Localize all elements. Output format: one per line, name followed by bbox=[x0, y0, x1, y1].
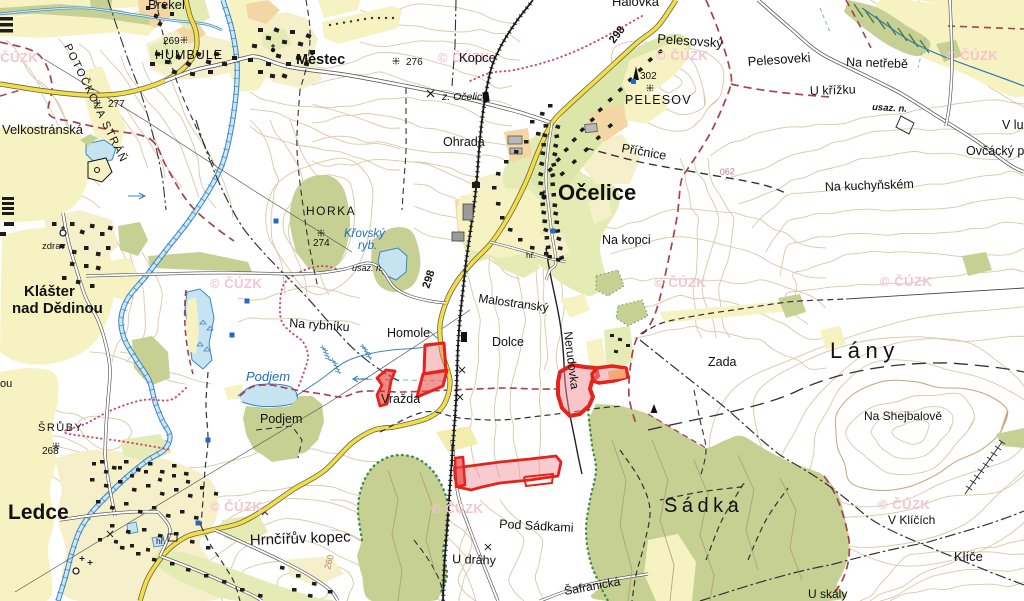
svg-text:Na kopci: Na kopci bbox=[602, 233, 651, 247]
svg-text:nad Dědinou: nad Dědinou bbox=[12, 300, 103, 317]
svg-text:ou: ou bbox=[0, 378, 12, 390]
svg-text:© ČÚZK: © ČÚZK bbox=[210, 499, 262, 514]
svg-text:© ČÚZK: © ČÚZK bbox=[880, 274, 932, 289]
svg-text:277: 277 bbox=[108, 99, 125, 110]
svg-text:Zada: Zada bbox=[708, 355, 737, 369]
svg-text:PELESOV: PELESOV bbox=[625, 93, 692, 107]
svg-text:Ohrada: Ohrada bbox=[443, 135, 485, 149]
svg-text:© ČÚZK: © ČÚZK bbox=[0, 50, 38, 65]
svg-text:062: 062 bbox=[720, 166, 736, 177]
svg-text:Lány: Lány bbox=[830, 338, 900, 363]
svg-text:U dráhy: U dráhy bbox=[452, 552, 497, 568]
svg-text:hř.: hř. bbox=[156, 536, 166, 546]
svg-text:ryb.: ryb. bbox=[358, 240, 377, 252]
svg-text:U křížku: U křížku bbox=[810, 82, 856, 98]
svg-text:Kopce: Kopce bbox=[459, 50, 496, 65]
svg-text:Velkostránská: Velkostránská bbox=[2, 122, 84, 137]
svg-text:Ovčácký p: Ovčácký p bbox=[966, 144, 1024, 158]
svg-text:Městec: Městec bbox=[296, 52, 345, 68]
svg-text:Vražda: Vražda bbox=[381, 392, 420, 406]
svg-text:Klíče: Klíče bbox=[954, 549, 983, 564]
svg-text:usaz. n.: usaz. n. bbox=[872, 102, 907, 115]
svg-text:z. Očelice: z. Očelice bbox=[441, 91, 488, 103]
svg-text:Sádka: Sádka bbox=[664, 495, 743, 517]
svg-text:268: 268 bbox=[42, 446, 59, 457]
svg-text:© ČÚZK: © ČÚZK bbox=[210, 276, 262, 291]
svg-text:Očelice: Očelice bbox=[558, 180, 636, 205]
svg-text:Dolce: Dolce bbox=[492, 335, 524, 349]
svg-text:V Klíčích: V Klíčích bbox=[888, 513, 935, 527]
svg-text:© ČÚZK: © ČÚZK bbox=[946, 48, 998, 63]
svg-text:302: 302 bbox=[640, 71, 657, 82]
svg-text:ŠRŮBY: ŠRŮBY bbox=[38, 421, 83, 434]
svg-text:HUMBULE: HUMBULE bbox=[155, 48, 223, 62]
svg-text:© ČÚZK: © ČÚZK bbox=[656, 48, 708, 63]
svg-text:U skály: U skály bbox=[808, 587, 847, 601]
svg-text:276: 276 bbox=[406, 57, 423, 68]
svg-text:Podjem: Podjem bbox=[260, 412, 302, 426]
svg-text:Brekel: Brekel bbox=[148, 0, 185, 12]
svg-text:zdrav: zdrav bbox=[42, 241, 65, 252]
svg-text:Homole: Homole bbox=[387, 326, 430, 340]
svg-text:© ČÚZK: © ČÚZK bbox=[878, 497, 930, 512]
svg-text:V luč: V luč bbox=[1002, 118, 1024, 132]
svg-text:Na netřebě: Na netřebě bbox=[846, 55, 908, 71]
svg-text:hř.: hř. bbox=[526, 250, 536, 260]
svg-text:Křovský: Křovský bbox=[344, 228, 386, 240]
svg-text:274: 274 bbox=[313, 238, 330, 249]
svg-text:Na Shejbalově: Na Shejbalově bbox=[864, 409, 942, 423]
svg-text:Hrnčířův kopec: Hrnčířův kopec bbox=[250, 528, 352, 549]
svg-text:usaz. n.: usaz. n. bbox=[352, 263, 384, 273]
svg-text:© ČÚZK: © ČÚZK bbox=[654, 275, 706, 290]
svg-text:Klášter: Klášter bbox=[24, 283, 75, 300]
svg-text:Ledce: Ledce bbox=[8, 501, 69, 524]
svg-text:© ČÚZK: © ČÚZK bbox=[431, 501, 483, 516]
svg-text:Podjem: Podjem bbox=[246, 369, 290, 384]
svg-text:269: 269 bbox=[163, 36, 180, 47]
svg-text:HORKA: HORKA bbox=[306, 204, 356, 218]
svg-text:Halovka: Halovka bbox=[612, 0, 660, 9]
